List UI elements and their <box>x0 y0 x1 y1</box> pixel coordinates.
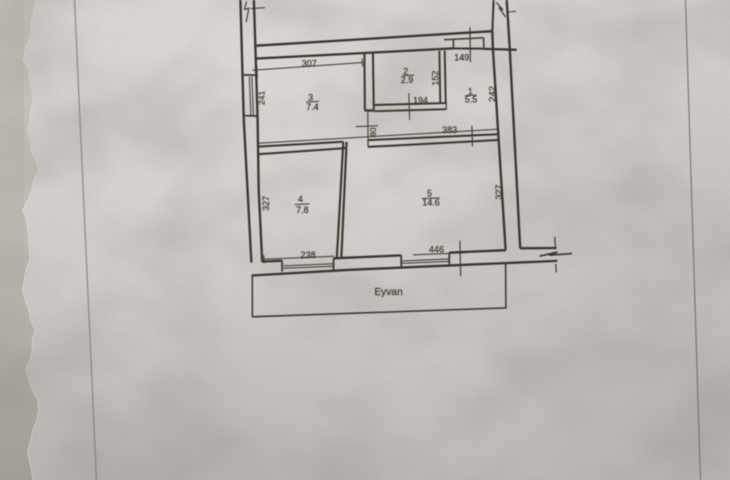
svg-text:4: 4 <box>298 194 303 204</box>
svg-text:446: 446 <box>429 244 444 254</box>
svg-text:327: 327 <box>494 184 504 199</box>
svg-text:327: 327 <box>261 196 271 211</box>
svg-text:242: 242 <box>488 86 499 102</box>
svg-text:307: 307 <box>302 59 317 69</box>
svg-text:80: 80 <box>368 127 378 137</box>
svg-text:238: 238 <box>301 250 316 260</box>
svg-text:241: 241 <box>256 91 266 105</box>
svg-text:7.8: 7.8 <box>296 205 309 215</box>
svg-text:194: 194 <box>413 95 428 105</box>
svg-text:149: 149 <box>454 52 469 62</box>
svg-text:5.5: 5.5 <box>465 95 478 105</box>
svg-text:152: 152 <box>431 71 441 86</box>
svg-text:14.6: 14.6 <box>422 197 440 207</box>
svg-text:7.4: 7.4 <box>306 102 319 112</box>
svg-text:2.9: 2.9 <box>401 75 414 85</box>
svg-text:Eyvan: Eyvan <box>374 287 402 298</box>
svg-text:383: 383 <box>442 125 457 135</box>
